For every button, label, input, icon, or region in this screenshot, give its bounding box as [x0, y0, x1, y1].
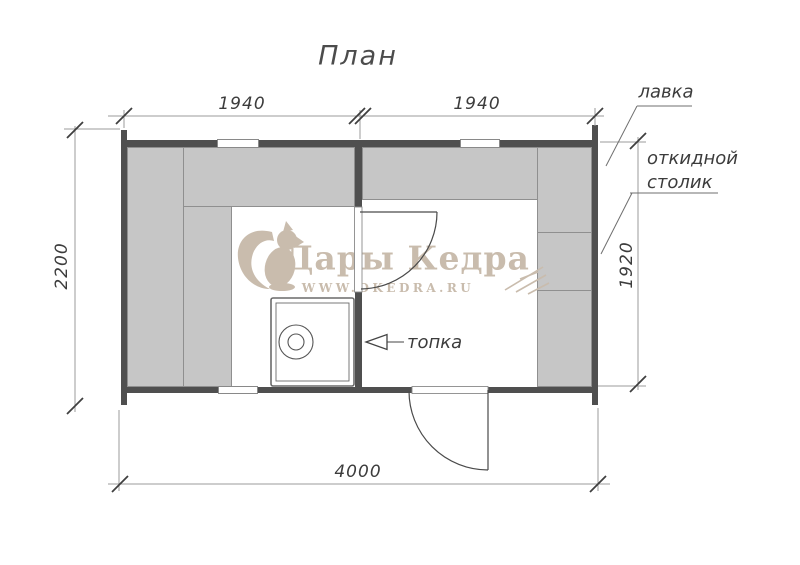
bench-divider	[537, 232, 592, 233]
bench-rest-top	[362, 147, 538, 200]
bench-steam-top	[183, 147, 355, 207]
window-top-left	[217, 139, 259, 148]
watermark-url: WWW.DKEDRA.RU	[302, 281, 475, 295]
plan-title: План	[318, 41, 398, 72]
watermark-brand: Дары Кедра	[284, 239, 530, 278]
wall-bottom	[127, 387, 592, 393]
bench-divider	[537, 290, 592, 291]
partition-wall-lower	[355, 292, 362, 387]
wall-right	[592, 125, 598, 405]
bench-steam-left-outer	[127, 147, 184, 387]
entrance-door	[409, 390, 488, 470]
partition-wall-upper	[355, 147, 362, 207]
wall-left	[121, 130, 127, 405]
label-folding-table-line1: откидной	[647, 148, 738, 169]
stove	[271, 298, 354, 386]
label-bench: лавка	[638, 82, 693, 103]
window-bottom-left	[218, 386, 258, 394]
floor-plan-canvas: План Дары Кедра WWW.DKEDRA.RU	[0, 0, 800, 565]
window-top-right	[460, 139, 500, 148]
dim-left-room-width: 1940	[218, 94, 265, 114]
furnace-arrow-icon	[366, 335, 404, 350]
door-jambs	[355, 207, 489, 394]
label-furnace: топка	[407, 332, 462, 353]
label-folding-table-line2: столик	[647, 172, 712, 193]
wall-top	[127, 140, 592, 147]
dim-height-right: 1920	[617, 241, 637, 288]
dim-total-width: 4000	[334, 462, 381, 482]
dim-height-left: 2200	[52, 242, 72, 289]
bench-rest-right	[537, 147, 592, 387]
dim-right-room-width: 1940	[453, 94, 500, 114]
bench-steam-left-inner	[183, 206, 232, 387]
